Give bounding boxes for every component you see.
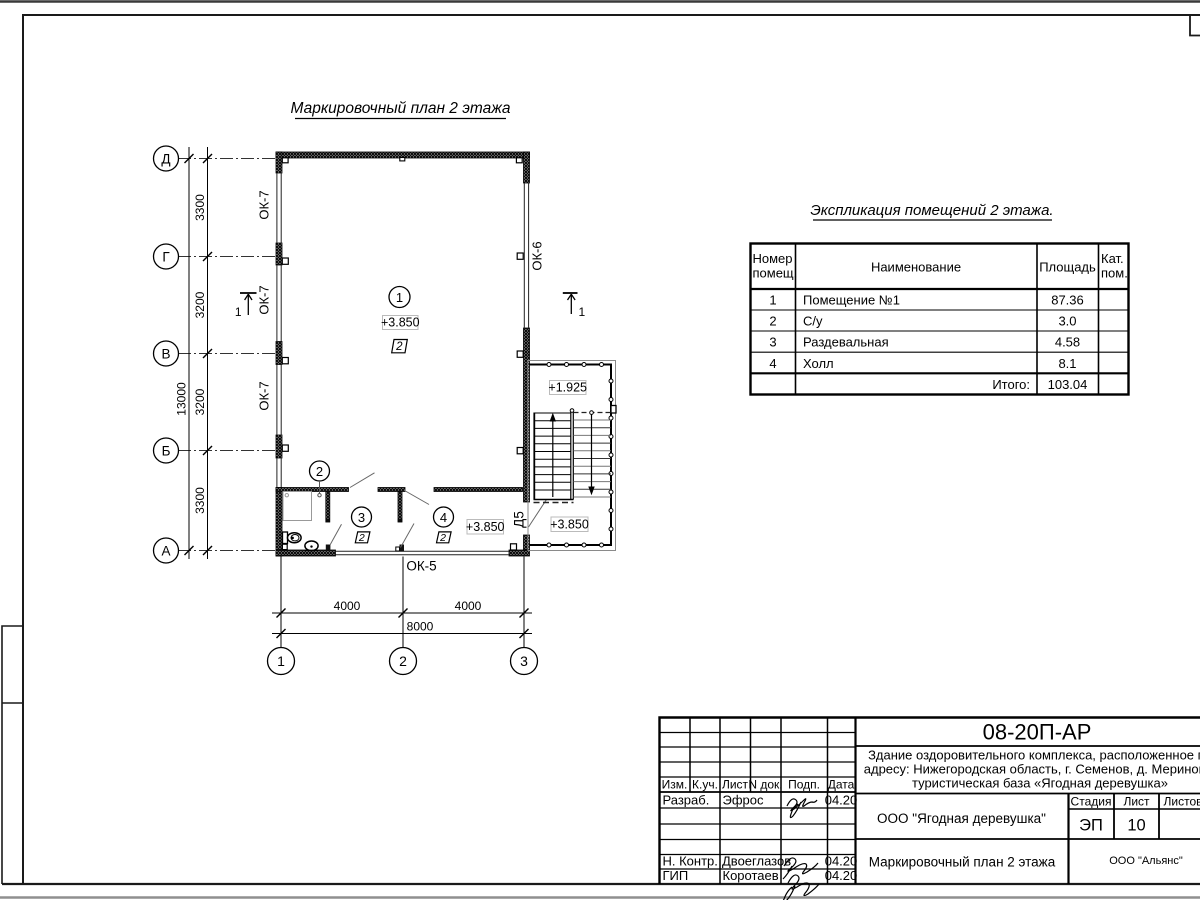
svg-text:Лист: Лист: [1123, 795, 1150, 809]
svg-text:13000: 13000: [175, 382, 189, 416]
svg-text:4.58: 4.58: [1055, 335, 1080, 350]
svg-text:103.04: 103.04: [1048, 377, 1088, 392]
svg-text:04.20: 04.20: [825, 793, 858, 808]
svg-text:ОК-7: ОК-7: [257, 381, 272, 410]
svg-text:ОК-6: ОК-6: [530, 241, 545, 270]
svg-text:помещ.: помещ.: [753, 266, 798, 281]
svg-text:пом.: пом.: [1101, 266, 1128, 281]
svg-text:Коротаев: Коротаев: [723, 868, 779, 883]
svg-text:Площадь: Площадь: [1039, 260, 1096, 275]
svg-text:+3.850: +3.850: [381, 316, 420, 330]
svg-text:2: 2: [395, 341, 403, 353]
svg-text:1: 1: [579, 305, 586, 319]
svg-text:8.1: 8.1: [1058, 356, 1076, 371]
svg-text:8000: 8000: [407, 620, 434, 634]
svg-text:ООО "Альянс": ООО "Альянс": [1109, 855, 1183, 867]
svg-text:2: 2: [399, 653, 407, 669]
svg-text:3300: 3300: [193, 487, 207, 514]
svg-text:4: 4: [440, 510, 447, 525]
svg-text:Д5: Д5: [512, 511, 527, 528]
svg-text:Г: Г: [162, 249, 170, 264]
svg-text:Разраб.: Разраб.: [663, 793, 710, 808]
svg-text:Б: Б: [162, 443, 171, 458]
svg-text:Д: Д: [161, 151, 170, 166]
svg-text:4000: 4000: [334, 599, 361, 613]
svg-text:Итого:: Итого:: [992, 377, 1030, 392]
svg-text:87.36: 87.36: [1051, 293, 1084, 308]
svg-text:2: 2: [316, 464, 323, 479]
svg-text:Здание оздоровительного компле: Здание оздоровительного комплекса, распо…: [868, 748, 1200, 763]
svg-text:3: 3: [769, 335, 776, 350]
svg-text:+1.925: +1.925: [548, 381, 587, 395]
svg-text:Помещение №1: Помещение №1: [803, 293, 900, 308]
svg-text:Изм.: Изм.: [662, 778, 688, 792]
svg-text:Номер: Номер: [753, 251, 793, 266]
svg-text:Листов: Листов: [1164, 795, 1200, 809]
svg-text:+3.850: +3.850: [466, 520, 505, 534]
svg-text:1: 1: [396, 290, 403, 305]
svg-text:1: 1: [277, 653, 285, 669]
svg-text:3.0: 3.0: [1058, 314, 1076, 329]
svg-text:Эфрос: Эфрос: [723, 793, 764, 808]
svg-text:3200: 3200: [193, 388, 207, 415]
svg-text:Двоеглазов: Двоеглазов: [722, 854, 791, 869]
svg-text:Подп.: Подп.: [788, 778, 820, 792]
svg-text:А: А: [161, 543, 170, 558]
svg-text:3: 3: [520, 653, 528, 669]
svg-text:ООО "Ягодная деревушка": ООО "Ягодная деревушка": [877, 811, 1046, 826]
svg-text:3300: 3300: [193, 194, 207, 221]
svg-text:С/у: С/у: [803, 314, 823, 329]
svg-text:В: В: [161, 346, 170, 361]
svg-text:туристическая база «Ягодная де: туристическая база «Ягодная деревушка»: [912, 776, 1168, 791]
svg-text:04.20: 04.20: [825, 868, 858, 883]
svg-text:3200: 3200: [193, 291, 207, 318]
svg-text:4: 4: [769, 356, 776, 371]
svg-text:Маркировочный план 2 этажа: Маркировочный план 2 этажа: [869, 855, 1056, 870]
svg-text:04.20: 04.20: [825, 854, 858, 869]
svg-text:адресу: Нижегородская область,: адресу: Нижегородская область, г. Семено…: [864, 762, 1200, 777]
svg-text:3: 3: [358, 510, 365, 525]
svg-text:1: 1: [769, 293, 776, 308]
svg-text:Маркировочный план 2 этажа: Маркировочный план 2 этажа: [291, 100, 511, 117]
svg-text:Экспликация помещений 2 этажа.: Экспликация помещений 2 этажа.: [810, 202, 1053, 219]
svg-text:Холл: Холл: [803, 356, 834, 371]
svg-text:4000: 4000: [455, 599, 482, 613]
svg-text:ОК-7: ОК-7: [257, 285, 272, 314]
svg-text:ОК-5: ОК-5: [406, 559, 436, 574]
svg-text:2: 2: [358, 532, 365, 544]
svg-text:ОК-7: ОК-7: [257, 190, 272, 219]
svg-text:ЭП: ЭП: [1079, 817, 1103, 835]
svg-text:2: 2: [439, 532, 446, 544]
svg-text:Раздевальная: Раздевальная: [803, 335, 889, 350]
svg-text:08-20П-АР: 08-20П-АР: [983, 720, 1092, 745]
svg-text:Н. Контр.: Н. Контр.: [663, 854, 718, 869]
svg-text:Стадия: Стадия: [1071, 795, 1112, 809]
svg-text:1: 1: [235, 305, 242, 319]
svg-text:Лист: Лист: [722, 778, 749, 792]
svg-text:2: 2: [769, 314, 776, 329]
svg-text:Дата: Дата: [828, 778, 855, 792]
svg-text:К.уч.: К.уч.: [692, 778, 718, 792]
svg-text:N док.: N док.: [748, 778, 782, 792]
svg-text:10: 10: [1127, 817, 1145, 835]
svg-text:Кат.: Кат.: [1101, 251, 1124, 266]
svg-text:+3.850: +3.850: [550, 518, 589, 532]
svg-text:Наименование: Наименование: [871, 260, 961, 275]
svg-text:ГИП: ГИП: [663, 868, 689, 883]
